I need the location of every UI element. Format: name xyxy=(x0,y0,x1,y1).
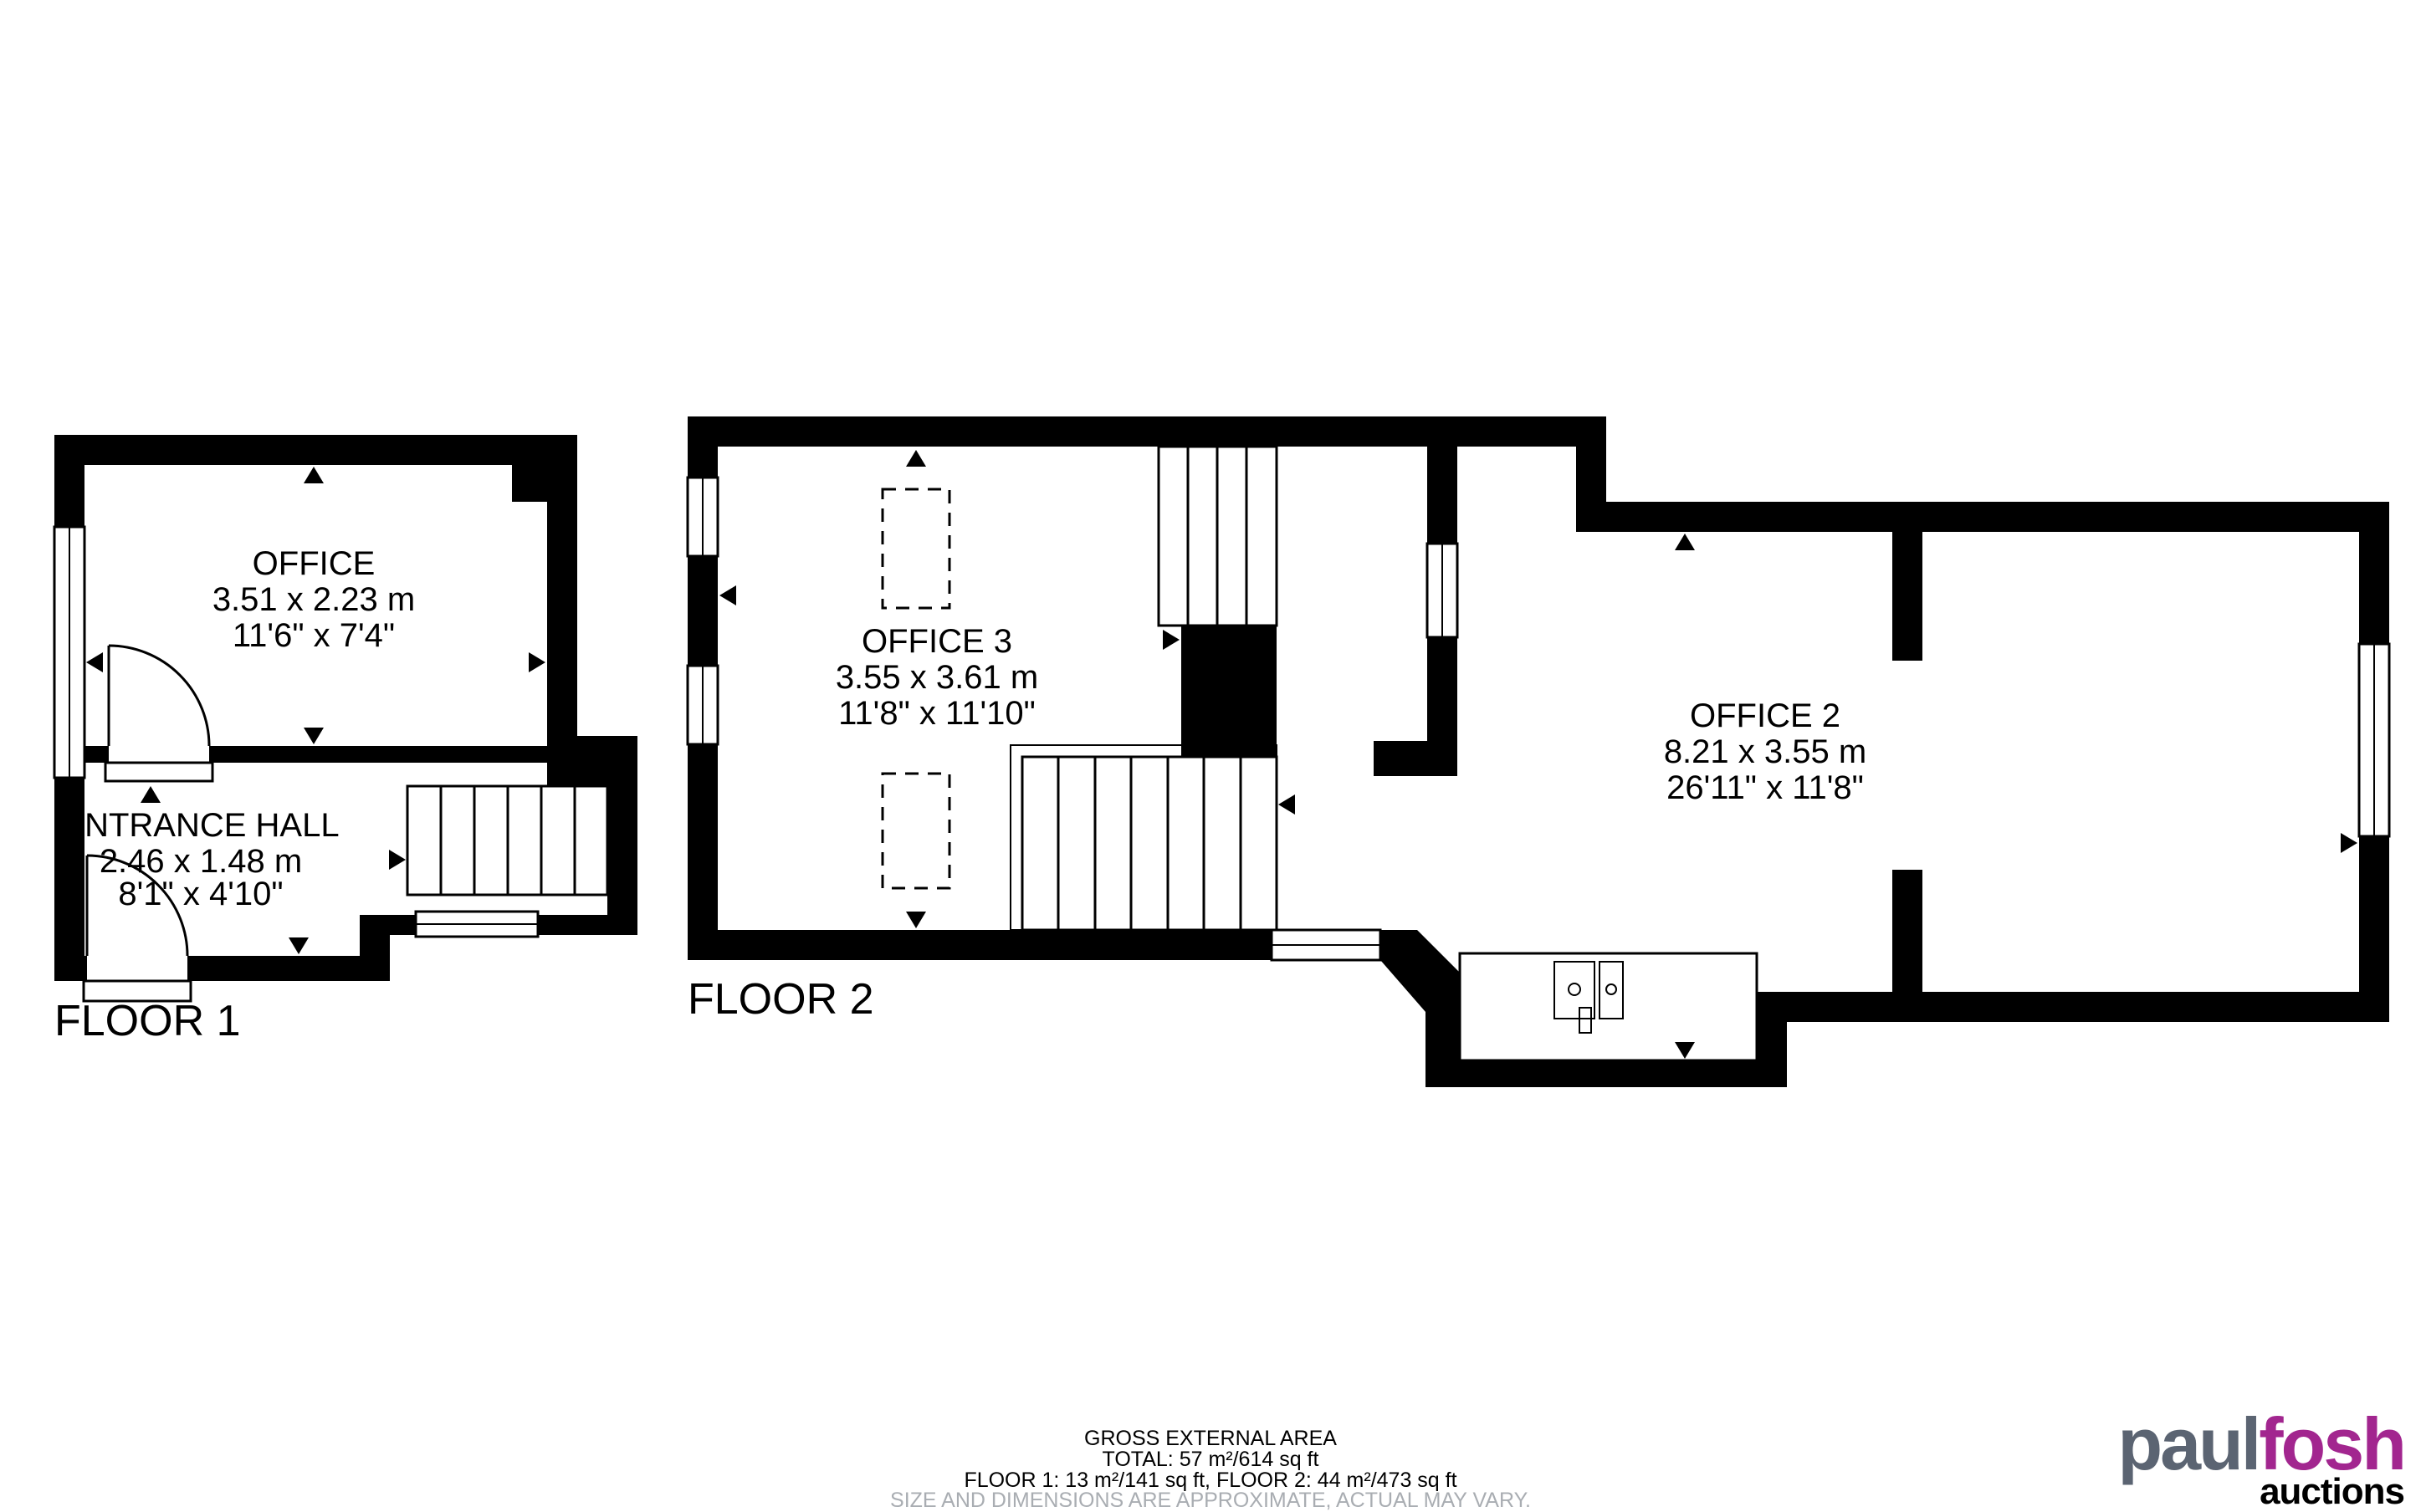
floor2-sink-unit xyxy=(1460,953,1757,1060)
floor1-office-label: OFFICE 3.51 x 2.23 m 11'6" x 7'4" xyxy=(212,545,415,654)
floor1-window-left xyxy=(54,527,84,778)
floor2-window-left-lower xyxy=(688,666,718,744)
floor2-title: FLOOR 2 xyxy=(688,975,874,1024)
office-name: OFFICE xyxy=(253,545,376,582)
floor1-title: FLOOR 1 xyxy=(54,997,241,1045)
floor1-hall-label: ENTRANCE HALL 2.46 x 1.48 m 8'1" x 4'10" xyxy=(62,807,339,912)
floor1-office-door xyxy=(105,646,212,781)
floor2-plan: OFFICE 3 3.55 x 3.61 m 11'8" x 11'10" OF… xyxy=(688,416,2389,1087)
office2-size-metric: 8.21 x 3.55 m xyxy=(1664,733,1866,770)
floor2-window-right xyxy=(2359,644,2389,836)
office3-size-metric: 3.55 x 3.61 m xyxy=(836,659,1038,696)
summary-title: GROSS EXTERNAL AREA xyxy=(1084,1427,1337,1450)
office2-name: OFFICE 2 xyxy=(1690,697,1840,734)
skylight-lower xyxy=(883,774,949,888)
hall-name: ENTRANCE HALL xyxy=(62,807,339,844)
floor2-office3-label: OFFICE 3 3.55 x 3.61 m 11'8" x 11'10" xyxy=(836,623,1038,732)
summary-total: TOTAL: 57 m²/614 sq ft xyxy=(1103,1448,1319,1471)
floor2-office2-label: OFFICE 2 8.21 x 3.55 m 26'11" x 11'8" xyxy=(1664,697,1866,806)
hall-size-metric: 2.46 x 1.48 m xyxy=(100,843,302,880)
office3-name: OFFICE 3 xyxy=(862,623,1012,660)
floor2-window-internal xyxy=(1427,544,1457,637)
skylight-upper xyxy=(883,489,949,608)
logo-paul: paul xyxy=(2117,1402,2259,1485)
area-summary: GROSS EXTERNAL AREA TOTAL: 57 m²/614 sq … xyxy=(890,1427,1531,1512)
floor1-stairs xyxy=(407,786,607,937)
office2-size-imperial: 26'11" x 11'8" xyxy=(1666,769,1864,806)
logo-tagline: auctions xyxy=(2260,1471,2404,1512)
office3-size-imperial: 11'8" x 11'10" xyxy=(838,695,1036,732)
summary-disclaimer: SIZE AND DIMENSIONS ARE APPROXIMATE, ACT… xyxy=(890,1489,1531,1512)
floor2-window-bottom xyxy=(1272,930,1380,960)
floor2-window-left-upper xyxy=(688,478,718,556)
hall-size-imperial: 8'1" x 4'10" xyxy=(118,876,283,912)
paulfosh-auctions-logo: paulfosh auctions xyxy=(2117,1402,2404,1512)
floorplan-drawing: OFFICE 3.51 x 2.23 m 11'6" x 7'4" ENTRAN… xyxy=(0,0,2421,1512)
floorplan-page: OFFICE 3.51 x 2.23 m 11'6" x 7'4" ENTRAN… xyxy=(0,0,2421,1512)
office-size-metric: 3.51 x 2.23 m xyxy=(212,581,415,618)
office-size-imperial: 11'6" x 7'4" xyxy=(233,617,395,654)
floor1-plan: OFFICE 3.51 x 2.23 m 11'6" x 7'4" ENTRAN… xyxy=(54,435,637,1045)
